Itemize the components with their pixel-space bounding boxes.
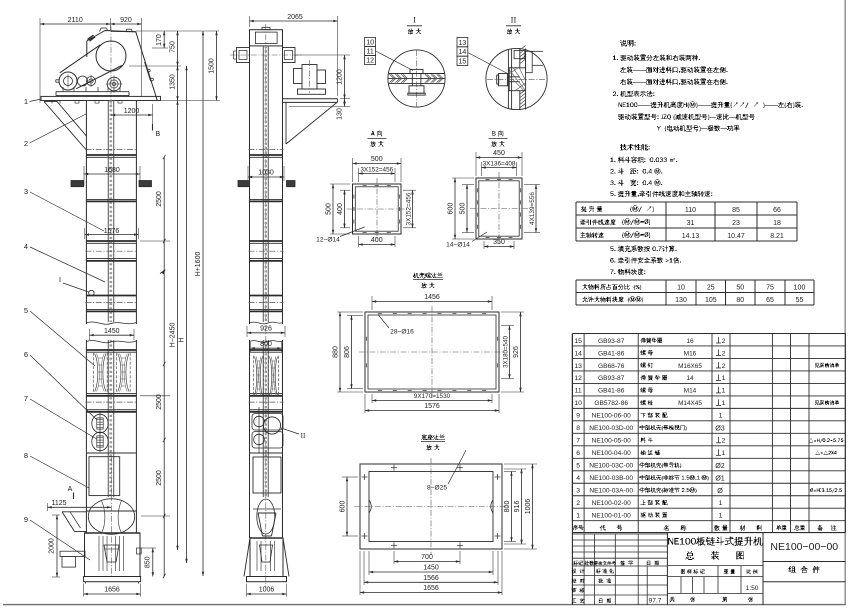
svg-text:400: 400 — [371, 237, 383, 244]
svg-text:2: 2 — [722, 363, 726, 370]
svg-text:2: 2 — [722, 350, 726, 357]
svg-text:NE100−00−00: NE100−00−00 — [770, 541, 838, 553]
svg-text:7: 7 — [24, 394, 28, 403]
svg-text:12: 12 — [574, 375, 582, 382]
svg-text:350: 350 — [493, 239, 505, 246]
svg-text:5: 5 — [576, 463, 580, 470]
svg-text:916: 916 — [514, 501, 521, 513]
svg-text:13: 13 — [574, 363, 582, 370]
svg-text:11: 11 — [575, 388, 582, 395]
svg-text:1006: 1006 — [259, 587, 275, 594]
svg-text:4X139=556: 4X139=556 — [529, 192, 536, 225]
svg-text:1:50: 1:50 — [746, 585, 759, 592]
svg-text:10: 10 — [677, 284, 685, 291]
svg-text:1: 1 — [719, 500, 723, 507]
svg-text:II: II — [301, 432, 306, 440]
svg-text:170: 170 — [156, 34, 163, 46]
svg-text:8.21: 8.21 — [770, 233, 784, 240]
svg-text:4: 4 — [576, 475, 580, 482]
svg-text:H+1600: H+1600 — [195, 252, 202, 277]
svg-text:750: 750 — [170, 41, 177, 53]
svg-text:9X170=1530: 9X170=1530 — [414, 393, 451, 400]
svg-text:130: 130 — [675, 297, 687, 304]
svg-text:1: 1 — [722, 450, 726, 457]
svg-text:1006: 1006 — [525, 499, 532, 515]
svg-text:NE100-01-00: NE100-01-00 — [592, 513, 632, 520]
svg-text:1030: 1030 — [258, 170, 274, 177]
svg-text:M14: M14 — [684, 388, 697, 395]
svg-text:10.47: 10.47 — [727, 233, 745, 240]
svg-text:18: 18 — [773, 220, 781, 227]
svg-text:9: 9 — [24, 515, 28, 524]
svg-text:I: I — [413, 15, 416, 25]
svg-text:400: 400 — [337, 203, 344, 215]
svg-text:800: 800 — [504, 501, 511, 513]
svg-text:NE100-04-00: NE100-04-00 — [592, 450, 632, 457]
svg-text:GB93-87: GB93-87 — [598, 375, 625, 382]
svg-text:85: 85 — [732, 207, 740, 214]
svg-text:105: 105 — [705, 297, 717, 304]
svg-text:I: I — [59, 277, 61, 284]
svg-text:806: 806 — [344, 346, 351, 358]
svg-text:2: 2 — [722, 338, 726, 345]
svg-text:8: 8 — [576, 425, 580, 432]
svg-text:3X180=540: 3X180=540 — [502, 336, 509, 368]
svg-text:2: 2 — [722, 438, 726, 445]
svg-text:50: 50 — [736, 284, 744, 291]
svg-text:12−Ø14: 12−Ø14 — [316, 237, 340, 244]
svg-text:28−Ø16: 28−Ø16 — [390, 329, 414, 336]
svg-text:700: 700 — [421, 554, 433, 561]
svg-text:1: 1 — [719, 513, 723, 520]
svg-text:B: B — [156, 131, 161, 138]
svg-text:GB5782-86: GB5782-86 — [594, 400, 628, 407]
svg-text:2065: 2065 — [287, 14, 303, 21]
svg-text:15: 15 — [459, 59, 467, 66]
svg-text:4: 4 — [24, 242, 28, 251]
svg-text:1566: 1566 — [423, 575, 439, 582]
svg-text:2: 2 — [576, 500, 580, 507]
svg-text:H−2450: H−2450 — [170, 323, 177, 348]
svg-text:920: 920 — [120, 17, 132, 24]
svg-text:926: 926 — [513, 346, 520, 358]
svg-text:M14X45: M14X45 — [678, 400, 702, 407]
svg-text:H: H — [179, 337, 186, 342]
svg-text:1456: 1456 — [424, 294, 440, 301]
svg-text:A: A — [68, 486, 73, 493]
svg-text:926: 926 — [260, 325, 272, 332]
svg-text:110: 110 — [685, 207, 696, 214]
svg-text:1656: 1656 — [423, 585, 439, 592]
svg-text:1450: 1450 — [104, 328, 120, 335]
svg-text:25: 25 — [707, 284, 715, 291]
svg-text:1: 1 — [24, 97, 28, 106]
svg-text:1350: 1350 — [170, 74, 177, 90]
svg-text:NE100-02-00: NE100-02-00 — [592, 500, 632, 507]
svg-text:NE100-03D-00: NE100-03D-00 — [589, 425, 633, 432]
svg-text:23: 23 — [732, 220, 740, 227]
svg-text:7: 7 — [576, 438, 580, 445]
svg-text:8: 8 — [24, 451, 28, 460]
svg-text:II: II — [511, 15, 517, 25]
svg-text:1576: 1576 — [424, 403, 440, 410]
svg-text:1125: 1125 — [51, 500, 66, 507]
svg-text:450: 450 — [493, 150, 505, 157]
svg-text:GB41-86: GB41-86 — [598, 388, 625, 395]
svg-text:2: 2 — [24, 139, 28, 148]
svg-text:5: 5 — [24, 306, 28, 315]
svg-text:9: 9 — [576, 413, 580, 420]
svg-text:14: 14 — [459, 49, 467, 56]
svg-text:15: 15 — [574, 338, 582, 345]
svg-text:97.7: 97.7 — [649, 597, 662, 604]
svg-text:M16X65: M16X65 — [678, 363, 702, 370]
svg-text:800: 800 — [260, 341, 272, 348]
svg-text:14: 14 — [686, 375, 694, 382]
svg-text:2000: 2000 — [49, 538, 56, 554]
svg-text:3: 3 — [576, 488, 580, 495]
svg-text:8−Ø25: 8−Ø25 — [427, 485, 447, 492]
svg-text:1: 1 — [576, 513, 580, 520]
svg-text:10: 10 — [366, 40, 374, 47]
svg-text:1450: 1450 — [423, 565, 439, 572]
svg-text:500: 500 — [371, 156, 383, 163]
svg-text:600: 600 — [339, 501, 346, 513]
svg-text:11: 11 — [366, 49, 373, 56]
svg-text:16: 16 — [686, 338, 694, 345]
svg-text:14−Ø14: 14−Ø14 — [446, 242, 470, 249]
svg-text:2110: 2110 — [68, 17, 83, 24]
svg-text:NE100-03B-00: NE100-03B-00 — [589, 475, 633, 482]
svg-text:55: 55 — [796, 297, 804, 304]
svg-text:12: 12 — [366, 58, 374, 65]
svg-text:M16: M16 — [684, 350, 697, 357]
svg-text:GB93-87: GB93-87 — [598, 338, 625, 345]
svg-text:80: 80 — [736, 297, 744, 304]
svg-text:500: 500 — [325, 203, 332, 215]
svg-text:100: 100 — [794, 284, 806, 291]
svg-text:880: 880 — [332, 346, 339, 358]
svg-text:10: 10 — [574, 400, 582, 407]
svg-text:1: 1 — [722, 375, 726, 382]
svg-text:2500: 2500 — [156, 470, 163, 486]
svg-text:NE100-05-00: NE100-05-00 — [592, 438, 632, 445]
svg-text:500: 500 — [459, 203, 466, 215]
svg-text:75: 75 — [766, 284, 774, 291]
svg-text:Ø3: Ø3 — [715, 424, 725, 433]
svg-text:14: 14 — [574, 350, 582, 357]
svg-text:Ø1: Ø1 — [715, 474, 725, 483]
svg-text:1: 1 — [722, 400, 726, 407]
svg-text:3X152=456: 3X152=456 — [405, 192, 412, 225]
svg-text:130: 130 — [337, 108, 344, 120]
svg-text:1656: 1656 — [104, 587, 120, 594]
svg-text:6: 6 — [24, 350, 28, 359]
svg-text:65: 65 — [766, 297, 774, 304]
svg-text:14.13: 14.13 — [682, 233, 700, 240]
svg-text:13: 13 — [459, 40, 467, 47]
svg-text:1200: 1200 — [337, 69, 344, 85]
svg-text:NE100-03C-00: NE100-03C-00 — [589, 463, 633, 470]
svg-text:850: 850 — [145, 556, 152, 568]
svg-text:6: 6 — [576, 450, 580, 457]
svg-text:NE100-03A-00: NE100-03A-00 — [589, 488, 633, 495]
svg-text:3X152=456: 3X152=456 — [360, 166, 393, 173]
svg-text:NE100-06-00: NE100-06-00 — [592, 413, 632, 420]
svg-text:600: 600 — [447, 203, 454, 215]
svg-text:31: 31 — [687, 220, 695, 227]
svg-text:1: 1 — [719, 413, 723, 420]
svg-text:66: 66 — [773, 207, 781, 214]
svg-text:GB68-76: GB68-76 — [598, 363, 625, 370]
svg-text:3X136=408: 3X136=408 — [483, 160, 516, 167]
svg-text:1: 1 — [722, 388, 726, 395]
svg-text:2500: 2500 — [156, 394, 163, 410]
svg-text:Ø: Ø — [717, 486, 723, 495]
svg-text:1680: 1680 — [104, 167, 120, 174]
svg-text:1500: 1500 — [209, 58, 216, 74]
svg-text:GB41-86: GB41-86 — [598, 350, 625, 357]
svg-text:Ø2: Ø2 — [715, 461, 725, 470]
svg-text:1576: 1576 — [104, 228, 120, 235]
svg-text:2500: 2500 — [156, 191, 163, 207]
svg-text:3: 3 — [24, 187, 28, 196]
svg-text:1200: 1200 — [124, 108, 140, 115]
